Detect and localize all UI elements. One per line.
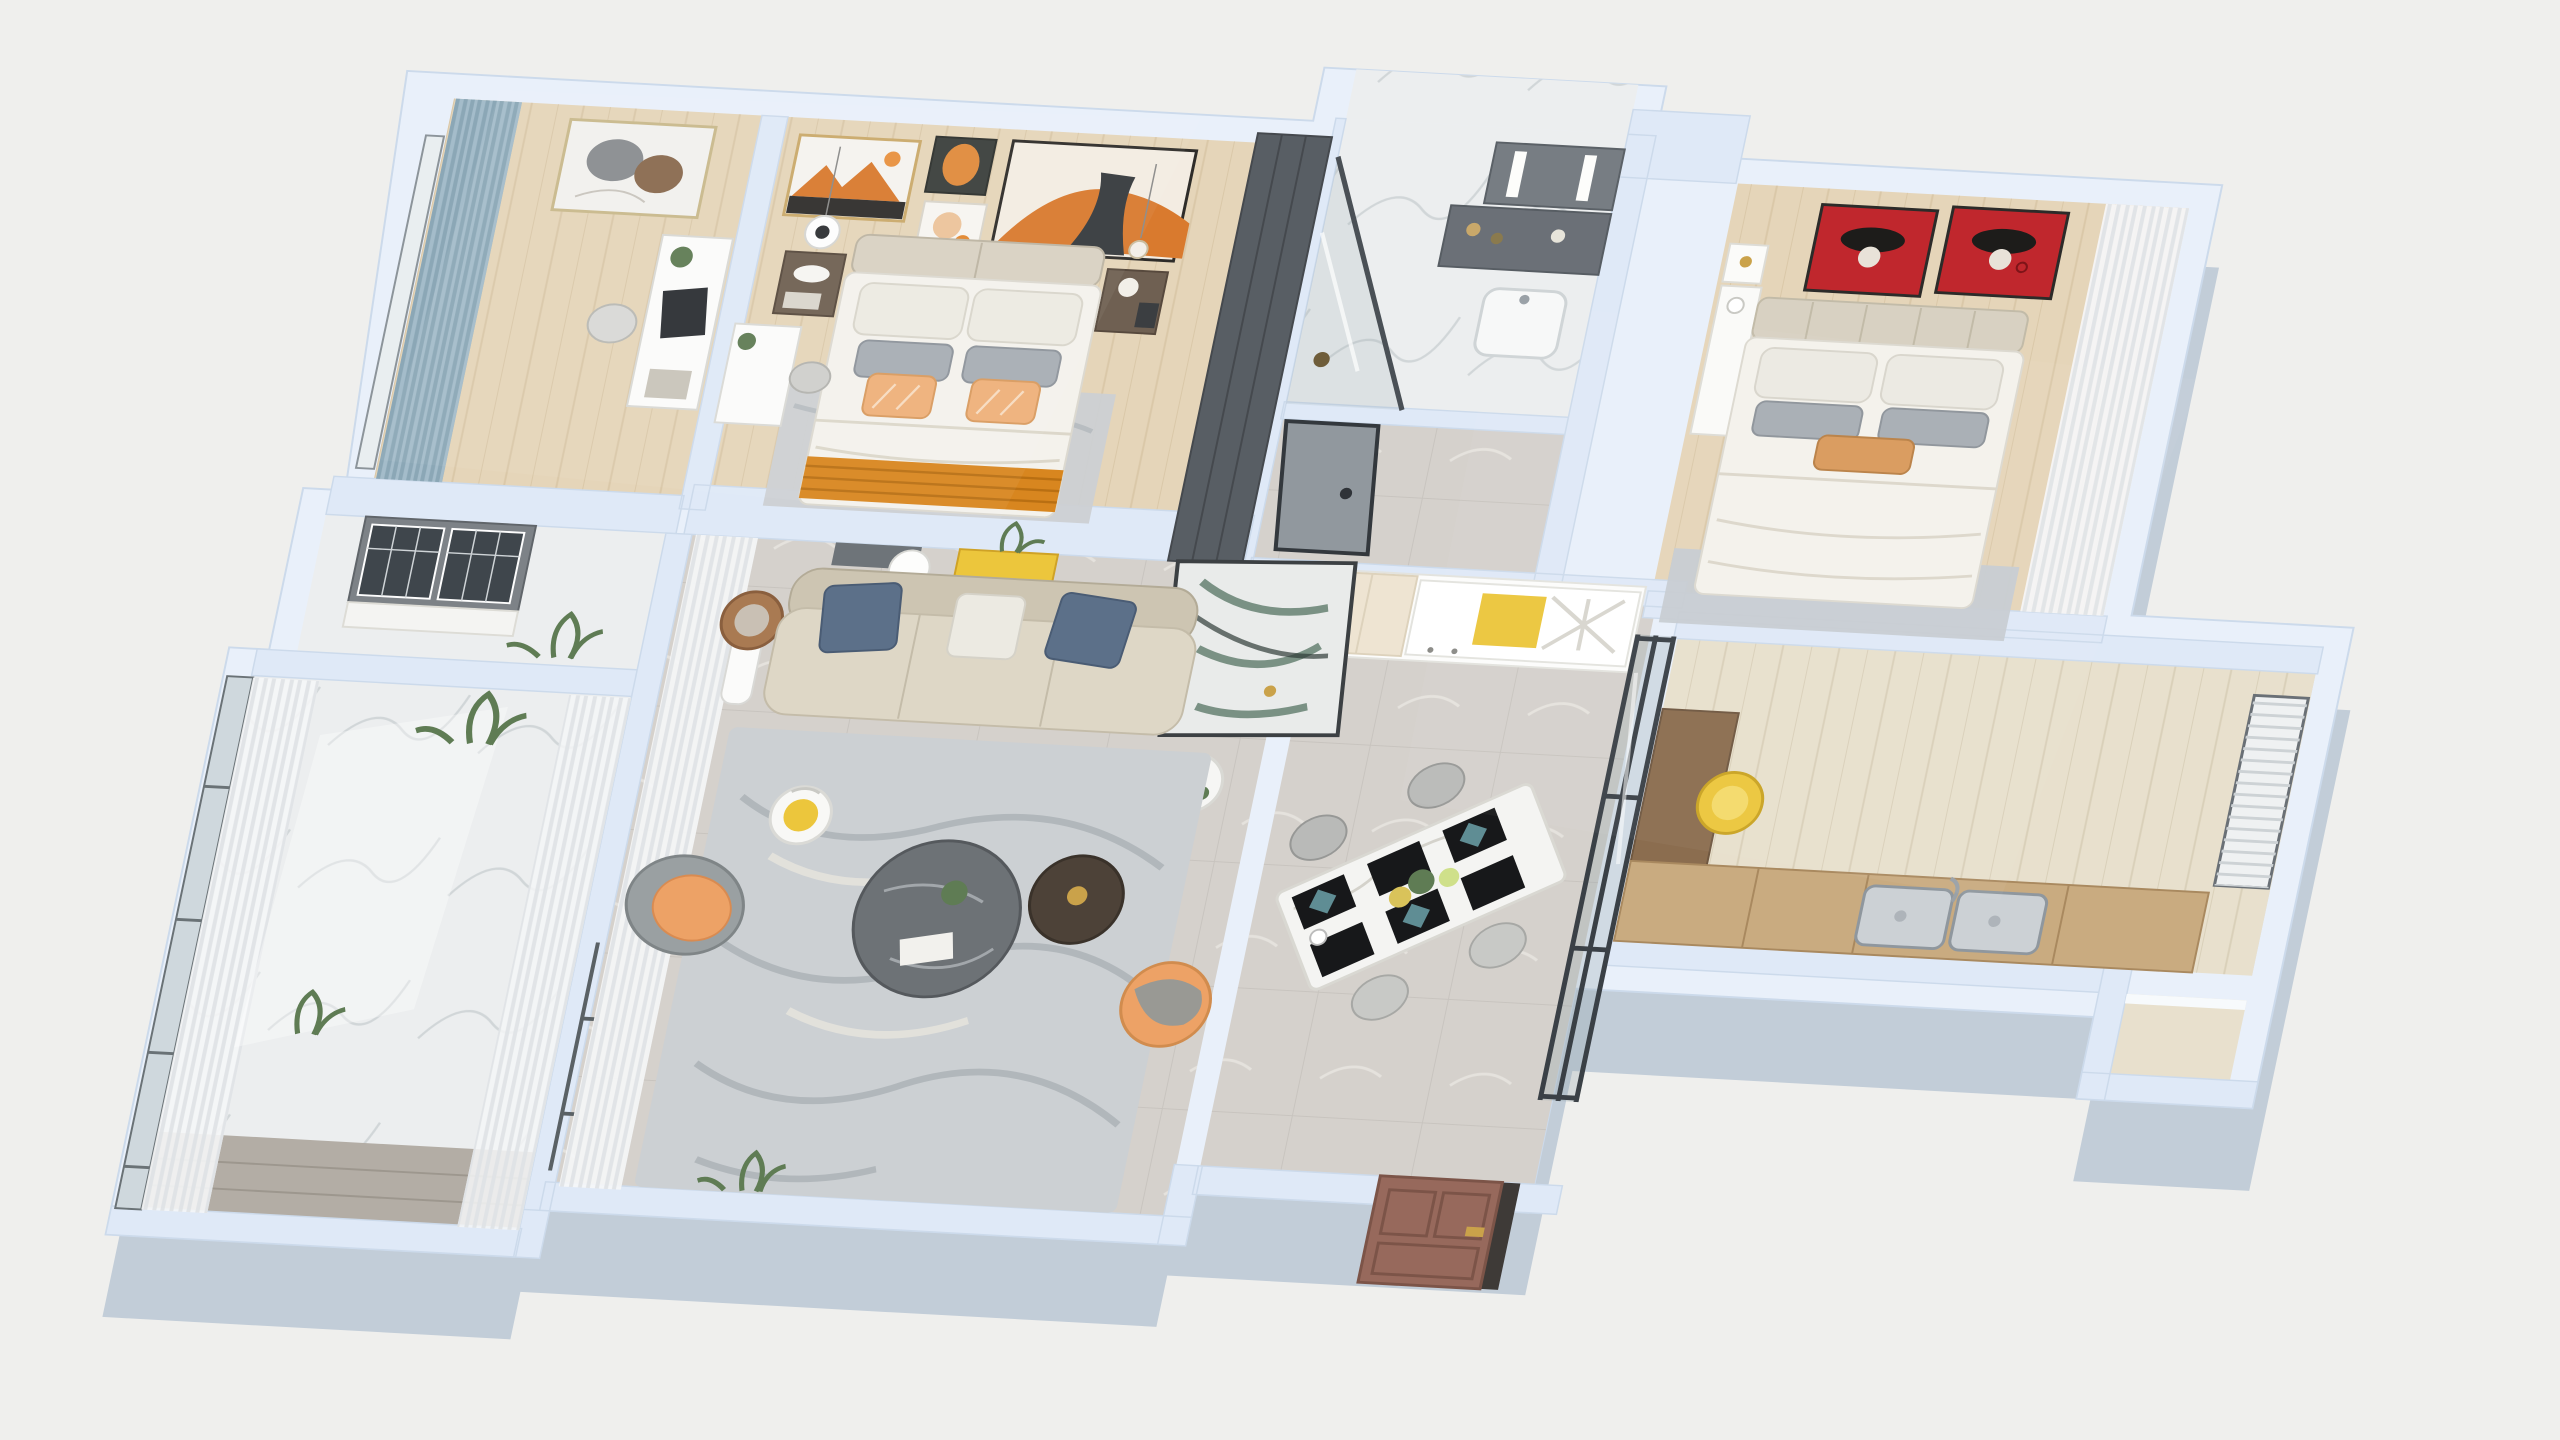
bathroom-vanity-counter: [1438, 205, 1611, 275]
laundry-cabinet-glass-right: [438, 529, 525, 603]
bedroom2-red-art-left: [1805, 205, 1938, 297]
laundry-cabinet-glass-left: [358, 525, 445, 599]
apartment-render: [0, 0, 2560, 1440]
sofa-pillow-white: [946, 593, 1027, 659]
bedroom2-red-art-right: [1936, 207, 2069, 299]
sofa-pillow-blue-left: [819, 583, 903, 653]
entry-door-handle: [1465, 1227, 1485, 1237]
floorplan-stage: [0, 0, 2560, 1440]
living-sofa: [760, 567, 1209, 736]
entry-door[interactable]: [1358, 1176, 1520, 1290]
bathroom-mirror-cabinet: [1484, 142, 1625, 210]
